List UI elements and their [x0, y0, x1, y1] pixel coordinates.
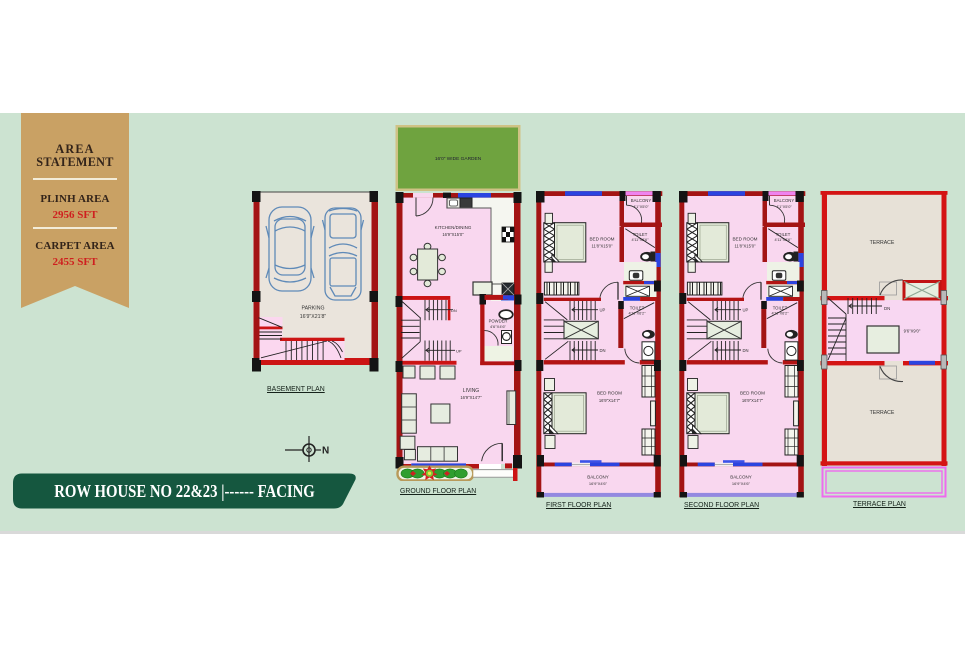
svg-text:TERRACE: TERRACE — [870, 240, 895, 246]
svg-text:LIVING: LIVING — [463, 388, 480, 394]
svg-text:4'6"X4'6": 4'6"X4'6" — [490, 324, 507, 329]
svg-text:UP: UP — [456, 349, 462, 354]
svg-text:DN: DN — [884, 306, 890, 311]
svg-text:11'8"X15'0": 11'8"X15'0" — [591, 244, 613, 249]
svg-text:N: N — [322, 446, 329, 457]
svg-text:16'9"X14'7": 16'9"X14'7" — [599, 398, 621, 403]
svg-text:KITCHEN/DINING: KITCHEN/DINING — [435, 225, 472, 230]
svg-text:BALCONY: BALCONY — [587, 475, 609, 480]
svg-text:16'9"X14'7": 16'9"X14'7" — [460, 395, 482, 400]
svg-text:16'9"X15'0": 16'9"X15'0" — [442, 232, 464, 237]
svg-text:BALCONY: BALCONY — [631, 198, 652, 203]
svg-text:16'9"X4'6": 16'9"X4'6" — [589, 481, 608, 486]
svg-text:UP: UP — [600, 308, 606, 313]
svg-text:9'6"X9'0": 9'6"X9'0" — [904, 329, 921, 334]
svg-text:BED ROOM: BED ROOM — [589, 237, 614, 242]
svg-text:16'0" WIDE GARDEN: 16'0" WIDE GARDEN — [435, 156, 482, 162]
svg-text:DN: DN — [600, 348, 606, 353]
svg-text:4'1"X5'0": 4'1"X5'0" — [633, 204, 649, 209]
svg-text:DN: DN — [451, 308, 457, 313]
svg-text:PARKING: PARKING — [302, 306, 325, 312]
svg-text:TOILET: TOILET — [630, 306, 645, 311]
svg-text:BED ROOM: BED ROOM — [597, 391, 622, 396]
svg-text:TERRACE: TERRACE — [870, 410, 895, 416]
svg-text:16'9"X21'8": 16'9"X21'8" — [300, 314, 327, 320]
